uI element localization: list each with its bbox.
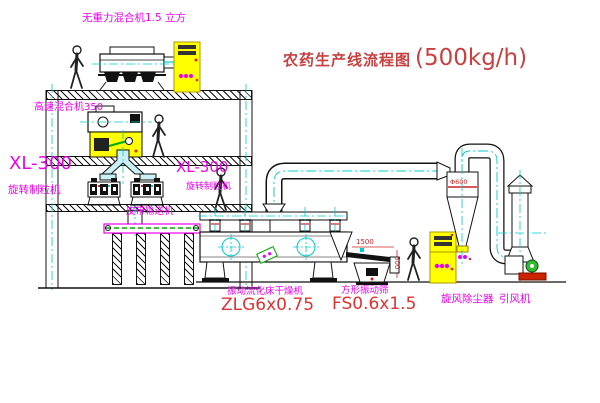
worker-figure	[408, 238, 420, 280]
label-granulator-right: 旋转制粒机	[186, 183, 231, 192]
label-high-speed-mixer: 高速混合机350	[34, 103, 103, 113]
label-belt-conveyor: 皮带输送机	[126, 207, 174, 217]
dimension-sieve-height: 500	[393, 256, 400, 269]
worker-figure	[71, 46, 83, 88]
exhaust-duct	[263, 162, 450, 218]
title-text: 农药生产线流程图	[283, 49, 411, 70]
flow-diagram: 农药生产线流程图 (500kg/h) 无重力混合机1.5 立方 高速混合机350…	[0, 0, 600, 403]
label-sieve-model: FS0.6x1.5	[332, 296, 416, 313]
vibrating-sieve	[346, 247, 399, 285]
label-granulator-left: 旋转制粒机	[8, 185, 61, 196]
fluid-bed-dryer	[198, 207, 352, 282]
no-gravity-mixer	[92, 47, 182, 90]
label-cyclone: 旋风除尘器	[441, 294, 494, 305]
label-gravity-mixer: 无重力混合机1.5 立方	[82, 13, 186, 24]
granulator	[87, 178, 121, 205]
high-speed-mixer	[80, 106, 152, 157]
control-cabinet	[430, 232, 456, 283]
label-xl300-right: XL-300	[176, 160, 228, 175]
label-xl300-left: XL-300	[9, 155, 72, 173]
title-capacity: (500kg/h)	[415, 45, 527, 71]
dimension-cyclone-diameter: Φ600	[450, 179, 468, 186]
belt-conveyor	[104, 224, 200, 233]
diagram-title: 农药生产线流程图 (500kg/h)	[283, 45, 527, 71]
granulator	[130, 178, 164, 205]
control-cabinet	[174, 42, 200, 92]
label-dryer-model: ZLG6x0.75	[221, 297, 314, 314]
worker-figure	[153, 115, 165, 157]
label-fan: 引风机	[499, 294, 531, 305]
dimension-sieve-length: 1500	[356, 239, 374, 246]
